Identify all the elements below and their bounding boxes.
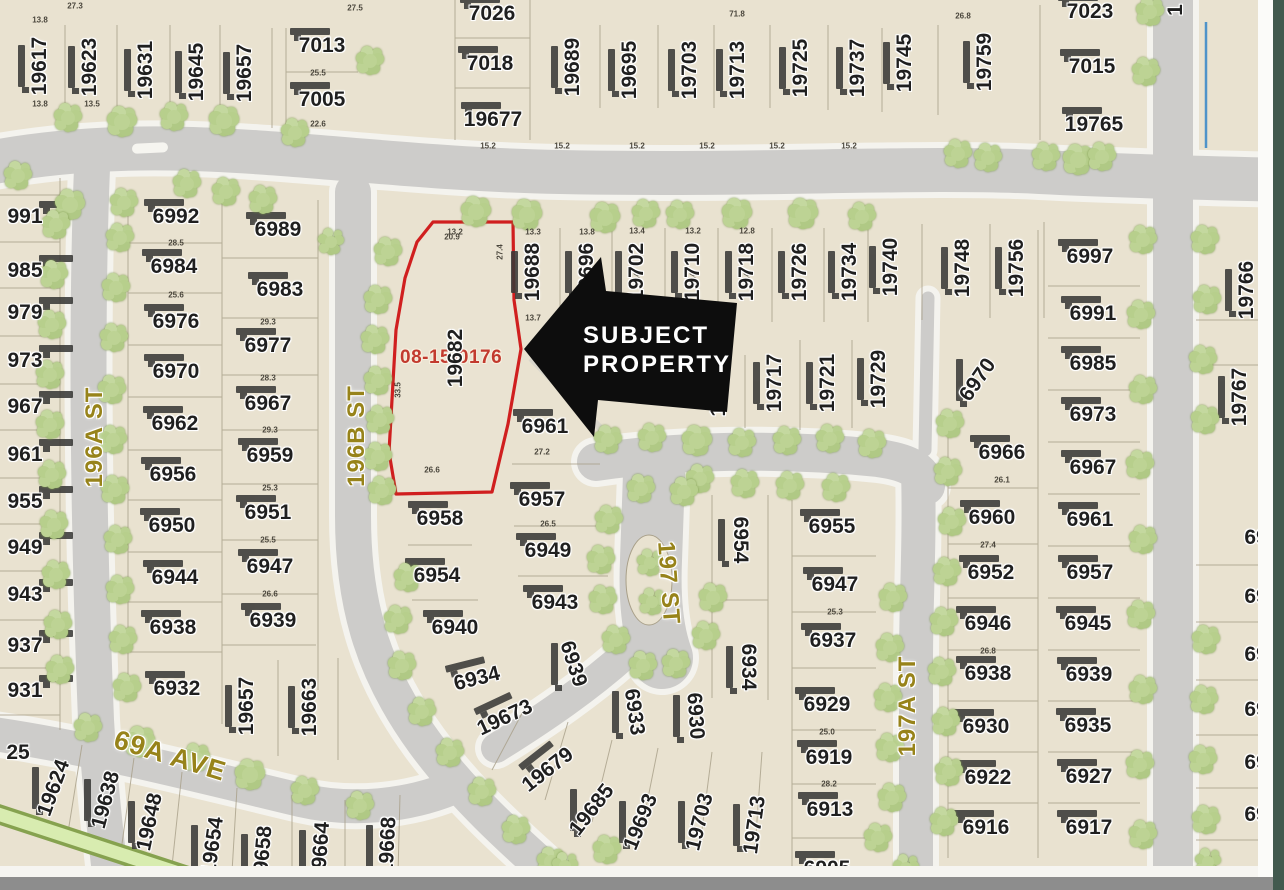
bottom-edge-road-band <box>0 877 1284 890</box>
bottom-edge-white-band <box>0 866 1284 877</box>
right-edge-green-strip <box>1273 0 1284 890</box>
parcel-map: 27.327.571.826.813.813.813.525.522.615.2… <box>0 0 1284 890</box>
callout-line2: PROPERTY <box>583 350 731 379</box>
right-edge-white-band <box>1258 0 1273 877</box>
subject-callout-text: SUBJECT PROPERTY <box>583 321 731 379</box>
callout-line1: SUBJECT <box>583 321 731 350</box>
subject-callout-arrow <box>0 0 1284 890</box>
subject-lot-number: 19682 <box>444 329 468 387</box>
